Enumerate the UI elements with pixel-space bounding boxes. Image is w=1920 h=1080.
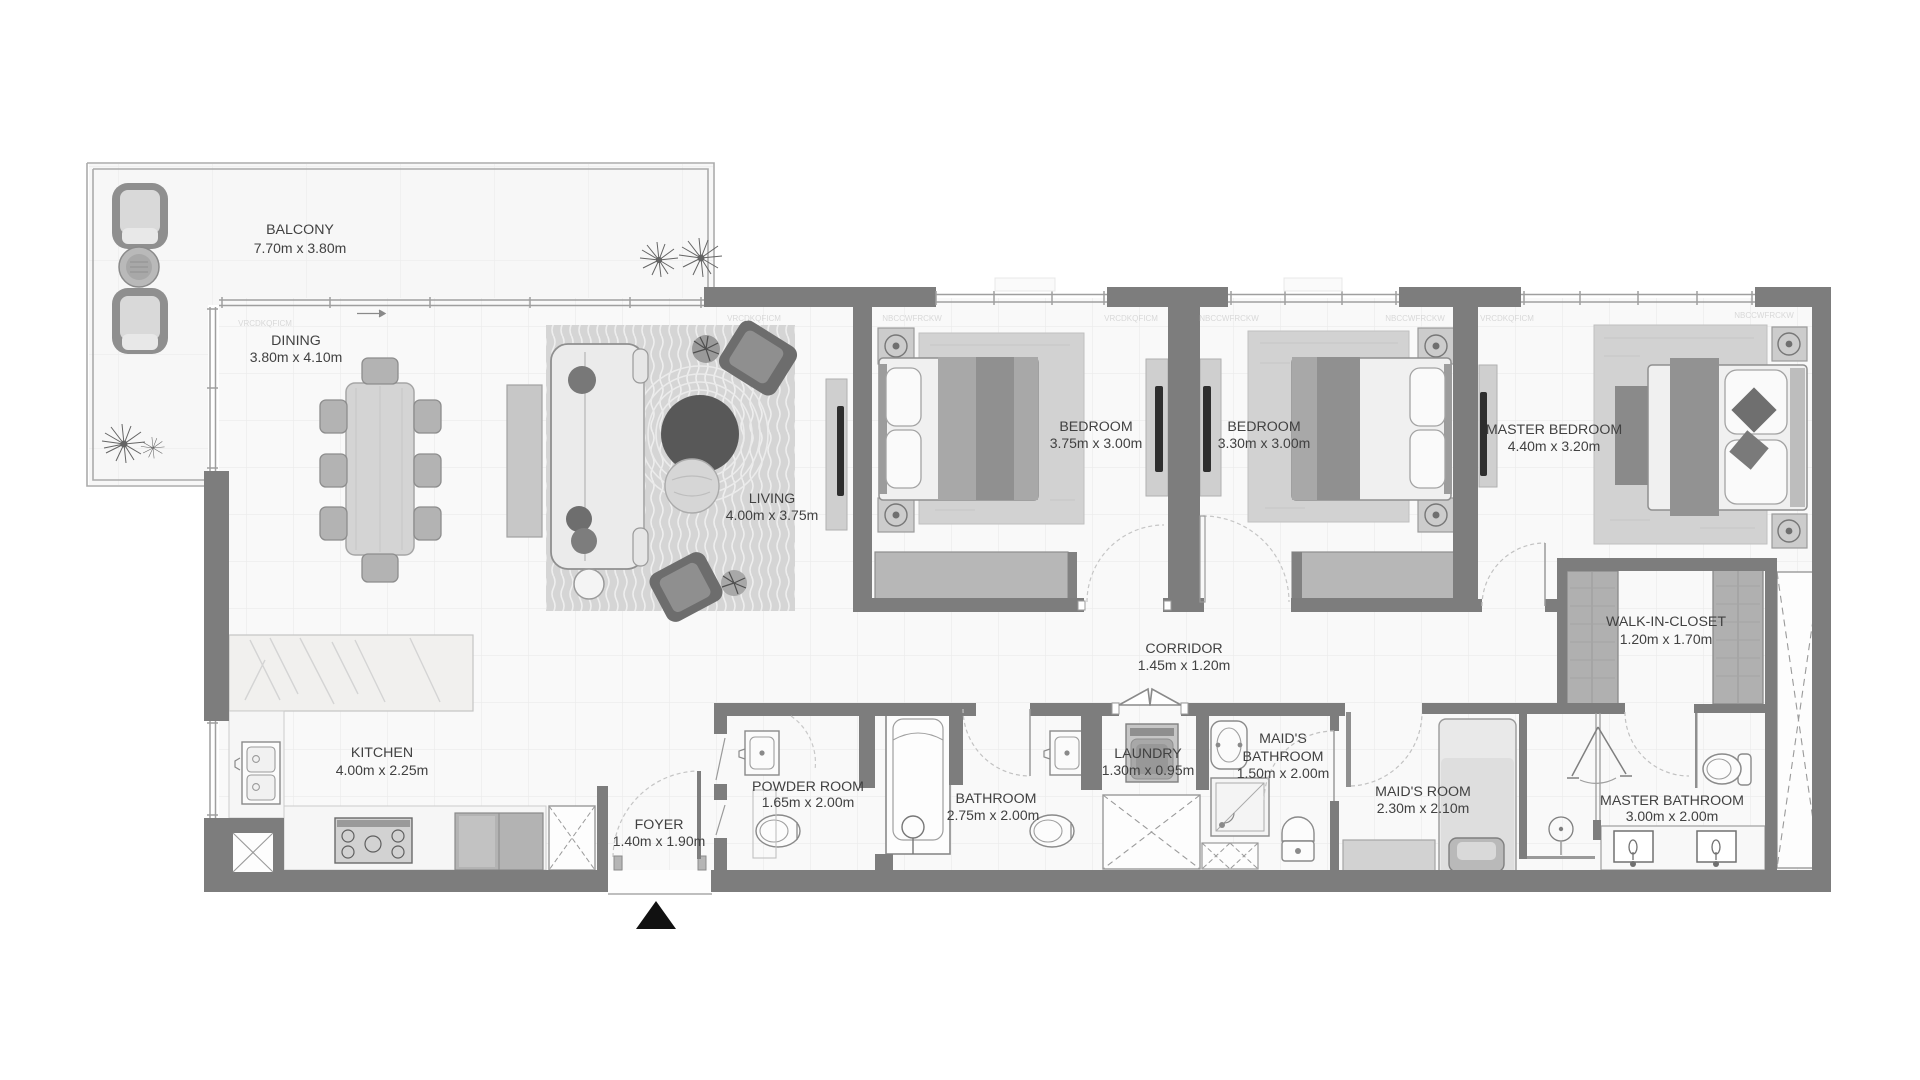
svg-text:DINING: DINING bbox=[271, 333, 321, 349]
svg-text:VRCDKQFICM: VRCDKQFICM bbox=[727, 314, 781, 323]
svg-text:NBCCWFRCKW: NBCCWFRCKW bbox=[1734, 311, 1794, 320]
svg-text:1.20m x 1.70m: 1.20m x 1.70m bbox=[1620, 631, 1713, 647]
svg-text:LIVING: LIVING bbox=[749, 491, 796, 507]
svg-text:VRCDKQFICM: VRCDKQFICM bbox=[1104, 314, 1158, 323]
svg-text:3.80m x 4.10m: 3.80m x 4.10m bbox=[250, 349, 343, 365]
svg-text:MAID'S ROOM: MAID'S ROOM bbox=[1375, 784, 1471, 800]
svg-text:BEDROOM: BEDROOM bbox=[1227, 419, 1300, 435]
svg-text:WALK-IN-CLOSET: WALK-IN-CLOSET bbox=[1606, 614, 1726, 630]
svg-text:1.65m x 2.00m: 1.65m x 2.00m bbox=[762, 794, 855, 810]
svg-text:7.70m x 3.80m: 7.70m x 3.80m bbox=[254, 240, 347, 256]
svg-text:VRCDKQFICM: VRCDKQFICM bbox=[238, 319, 292, 328]
svg-text:NBCCWFRCKW: NBCCWFRCKW bbox=[882, 314, 942, 323]
svg-text:4.40m x 3.20m: 4.40m x 3.20m bbox=[1508, 438, 1601, 454]
svg-text:POWDER ROOM: POWDER ROOM bbox=[752, 779, 864, 795]
svg-text:NBCCWFRCKW: NBCCWFRCKW bbox=[1385, 314, 1445, 323]
svg-text:FOYER: FOYER bbox=[635, 817, 684, 833]
svg-text:BATHROOM: BATHROOM bbox=[956, 791, 1037, 807]
svg-text:LAUNDRY: LAUNDRY bbox=[1114, 746, 1182, 762]
svg-text:4.00m x 2.25m: 4.00m x 2.25m bbox=[336, 762, 429, 778]
svg-text:MAID'S: MAID'S bbox=[1259, 731, 1307, 747]
svg-text:MASTER BATHROOM: MASTER BATHROOM bbox=[1600, 793, 1744, 809]
svg-text:1.40m x 1.90m: 1.40m x 1.90m bbox=[613, 833, 706, 849]
svg-text:2.30m x 2.10m: 2.30m x 2.10m bbox=[1377, 800, 1470, 816]
svg-text:3.30m x 3.00m: 3.30m x 3.00m bbox=[1218, 435, 1311, 451]
svg-text:MASTER BEDROOM: MASTER BEDROOM bbox=[1486, 422, 1622, 438]
svg-text:3.75m x 3.00m: 3.75m x 3.00m bbox=[1050, 435, 1143, 451]
svg-text:KITCHEN: KITCHEN bbox=[351, 745, 413, 761]
svg-text:BATHROOM: BATHROOM bbox=[1243, 749, 1324, 765]
svg-text:BALCONY: BALCONY bbox=[266, 222, 334, 238]
svg-text:1.30m x 0.95m: 1.30m x 0.95m bbox=[1102, 762, 1195, 778]
svg-text:4.00m x 3.75m: 4.00m x 3.75m bbox=[726, 507, 819, 523]
svg-text:CORRIDOR: CORRIDOR bbox=[1145, 641, 1222, 657]
svg-text:BEDROOM: BEDROOM bbox=[1059, 419, 1132, 435]
svg-text:NBCCWFRCKW: NBCCWFRCKW bbox=[1199, 314, 1259, 323]
svg-text:1.45m x 1.20m: 1.45m x 1.20m bbox=[1138, 657, 1231, 673]
svg-text:VRCDKQFICM: VRCDKQFICM bbox=[1480, 314, 1534, 323]
svg-text:2.75m x 2.00m: 2.75m x 2.00m bbox=[947, 807, 1040, 823]
svg-text:3.00m x 2.00m: 3.00m x 2.00m bbox=[1626, 808, 1719, 824]
svg-text:1.50m x 2.00m: 1.50m x 2.00m bbox=[1237, 765, 1330, 781]
